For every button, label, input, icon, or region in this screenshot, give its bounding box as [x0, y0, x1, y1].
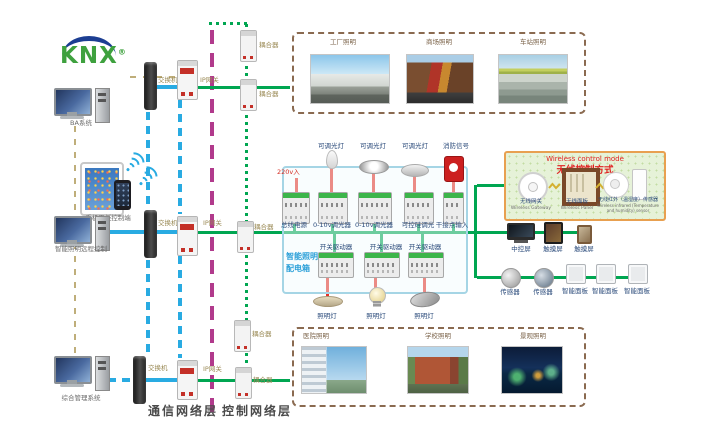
comm-line-pc-to-switch: [104, 230, 144, 234]
switch-actuator-label-2: 开关驱动器: [364, 244, 408, 251]
smart-panel-label-3: 智能面板: [617, 288, 657, 295]
power-input-label: 220v入: [277, 169, 300, 176]
line-coupler-2[interactable]: [240, 79, 257, 111]
landscape-photo: [501, 346, 563, 394]
comm-line-gateway-vertical-1: [178, 100, 182, 214]
touch-screen-label-2: 触摸屏: [564, 246, 604, 253]
management-system-computer[interactable]: [54, 356, 108, 392]
knx-logo-registered-mark: ®: [118, 47, 127, 56]
flush-ceiling-lamp-icon: [313, 296, 343, 307]
tower-icon: [95, 88, 110, 123]
coupler-label-3: 耦合器: [254, 224, 274, 231]
gateway-label-3: IP网关: [203, 366, 222, 373]
tower-icon: [95, 356, 110, 391]
line-coupler-1[interactable]: [240, 30, 257, 62]
mall-photo: [406, 54, 474, 104]
bus-power-module[interactable]: [282, 192, 310, 224]
knx-system-diagram: KNX® BA系统 手机平板控制端 智能照明远程控制 综合管理系统 交换机 IP…: [0, 0, 715, 443]
switch-actuator-label-3: 开关驱动器: [403, 244, 447, 251]
wireless-humidity-sensor-icon[interactable]: [632, 169, 647, 200]
switch-label-3: 交换机: [148, 365, 168, 372]
comm-line-switch-to-gateway-3: [146, 378, 178, 382]
phone-icon: [114, 180, 131, 210]
coupler-label-1: 耦合器: [259, 42, 279, 49]
line-coupler-4[interactable]: [234, 320, 251, 352]
fire-signal-label: 消防信号: [432, 143, 480, 150]
line-coupler-3[interactable]: [237, 221, 254, 253]
factory-lighting-label: 工厂照明: [315, 39, 371, 46]
downlight-icon: [359, 160, 389, 174]
line-coupler-5[interactable]: [235, 367, 252, 399]
coupler-label-4: 耦合器: [252, 331, 272, 338]
smart-panel-1[interactable]: [566, 264, 586, 284]
school-lighting-label: 学校照明: [410, 333, 466, 340]
switch-label-2: 交换机: [158, 220, 178, 227]
smart-panel-2[interactable]: [596, 264, 616, 284]
switch-actuator-1[interactable]: [318, 252, 354, 278]
candle-bulb-icon: [326, 150, 338, 169]
dimmer-module-2[interactable]: [358, 192, 392, 224]
ceiling-lamp-icon: [401, 164, 429, 177]
dry-contact-module[interactable]: [443, 192, 464, 224]
wireless-gateway-label-en: Wireless Gateway: [509, 206, 553, 211]
wireless-link-icon: [548, 181, 562, 191]
sensor-1[interactable]: [501, 268, 521, 288]
wireless-control-box: Wireless control mode 无线控制方式 无线网关 Wirele…: [504, 151, 666, 221]
central-control-screen[interactable]: [507, 223, 535, 240]
mall-lighting-label: 商场照明: [411, 39, 467, 46]
ip-gateway-2[interactable]: [177, 216, 198, 256]
lamp-label-1: 照明灯: [307, 313, 347, 320]
dimmable-lamp-label-2: 可调光灯: [349, 143, 397, 150]
knx-branch-vertical: [474, 185, 477, 278]
coupler-label-5: 耦合器: [253, 377, 273, 384]
panel-title-line2: 配电箱: [286, 264, 310, 273]
ip-gateway-1[interactable]: [177, 60, 198, 100]
switch-actuator-label-1: 开关驱动器: [314, 244, 358, 251]
station-photo: [498, 54, 568, 104]
ip-gateway-3[interactable]: [177, 360, 198, 400]
sensor-2[interactable]: [534, 268, 554, 288]
gateway-label-1: IP网关: [200, 77, 219, 84]
touch-screen-1[interactable]: [544, 222, 563, 244]
wireless-sensor-label-en: Wireless infrared (Temperature and humid…: [593, 204, 663, 214]
ethernet-switch-3[interactable]: [133, 356, 146, 404]
dimmer-module-1[interactable]: [318, 192, 348, 224]
lamp-label-2: 照明灯: [356, 313, 396, 320]
comm-line-pc-to-switch-3: [108, 378, 134, 382]
smart-panel-3[interactable]: [628, 264, 648, 284]
station-lighting-label: 车站照明: [505, 39, 561, 46]
scr-dimmer-module[interactable]: [404, 192, 434, 224]
switch-actuator-3[interactable]: [408, 252, 444, 278]
landscape-lighting-label: 景观照明: [505, 333, 561, 340]
knx-logo-text: KNX: [60, 43, 118, 69]
wireless-gateway-label-zh: 无线网关: [509, 199, 553, 205]
comm-line-switch-vertical-2: [146, 260, 150, 354]
knx-branch-to-wireless: [477, 184, 506, 187]
ba-system-label: BA系统: [41, 120, 121, 127]
dimmer-label-2: 0-10v调光器: [352, 222, 396, 229]
bus-power-label: 总线电源: [274, 222, 314, 229]
knx-backbone-top-stub: [209, 22, 247, 25]
comm-line-gateway-vertical-2: [178, 256, 182, 358]
touch-screen-2[interactable]: [577, 225, 592, 244]
mobile-control-group[interactable]: [80, 158, 140, 218]
comm-line-switch-vertical-1: [146, 112, 150, 208]
ethernet-switch-2[interactable]: [144, 210, 157, 258]
ethernet-switch-1[interactable]: [144, 62, 157, 110]
management-system-label: 综合管理系统: [41, 395, 121, 402]
dry-contact-label: 干接点输入: [432, 222, 472, 229]
factory-photo: [310, 54, 390, 104]
bulb-base-icon: [373, 301, 381, 307]
fire-alarm-icon: [444, 156, 464, 182]
lamp-label-3: 照明灯: [404, 313, 444, 320]
coupler-label-2: 耦合器: [259, 91, 279, 98]
switch-label-1: 交换机: [158, 77, 178, 84]
switch-actuator-2[interactable]: [364, 252, 400, 278]
panel-title-line1: 智能照明: [286, 252, 318, 261]
ctrl-layer-label: 控制网络层: [222, 402, 292, 419]
dimmer-label-1: 0-10v调光器: [310, 222, 354, 229]
comm-line-switch-to-gateway-2: [157, 230, 178, 234]
knx-logo: KNX®: [60, 36, 140, 78]
hospital-lighting-label: 医院照明: [288, 333, 344, 340]
comm-line-switch-to-gateway-1: [157, 85, 178, 89]
school-photo: [407, 346, 469, 394]
hospital-photo: [301, 346, 367, 394]
gateway-label-2: IP网关: [203, 220, 222, 227]
remote-control-label: 智能照明远程控制: [21, 246, 141, 253]
comm-layer-label: 通信网络层: [148, 402, 218, 419]
